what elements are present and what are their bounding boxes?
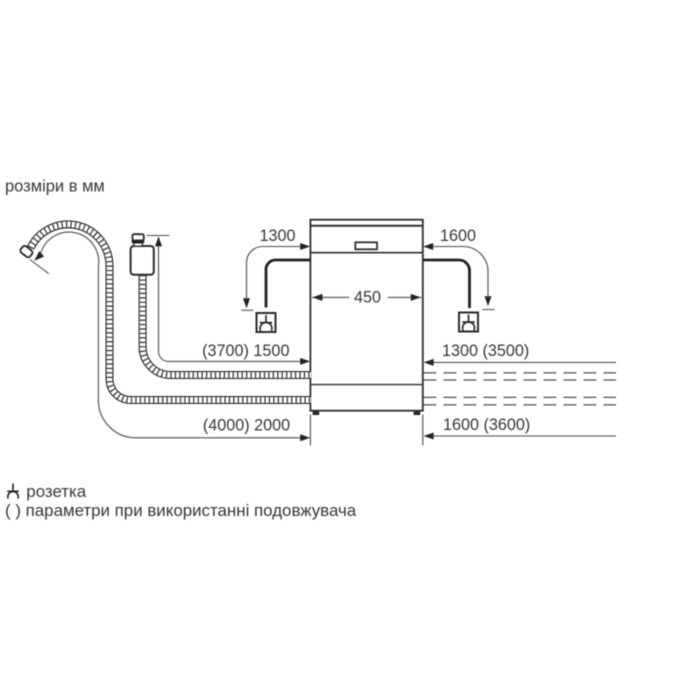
svg-text:1600: 1600 [440, 227, 476, 245]
svg-text:1600 (3600): 1600 (3600) [443, 416, 530, 434]
svg-text:(4000) 2000: (4000) 2000 [203, 417, 290, 435]
svg-text:1300: 1300 [259, 227, 295, 245]
svg-text:450: 450 [354, 289, 381, 307]
svg-text:розміри в мм: розміри в мм [5, 178, 105, 196]
svg-text:1300 (3500): 1300 (3500) [442, 342, 529, 360]
svg-text:(3700) 1500: (3700) 1500 [202, 342, 289, 360]
svg-text:розетка: розетка [26, 482, 86, 501]
svg-text:( ) параметри при використанні: ( ) параметри при використанні подовжува… [5, 501, 357, 520]
